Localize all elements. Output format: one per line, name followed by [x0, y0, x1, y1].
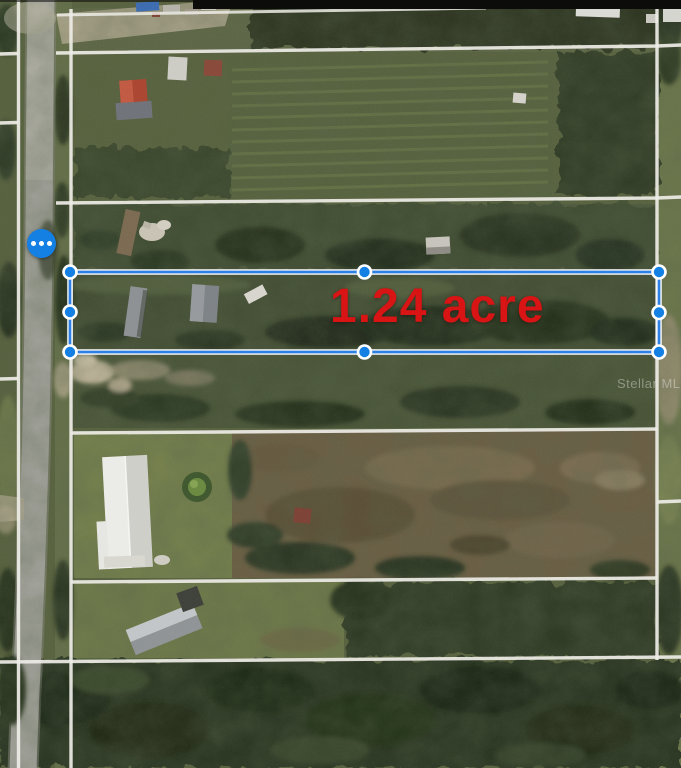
image-edge-band: [193, 0, 681, 9]
selection-handle-top-right[interactable]: [651, 264, 667, 280]
acreage-label: 1.24 acre: [330, 283, 545, 331]
aerial-map-view[interactable]: 1.24 acre Stellar MLS: [0, 0, 681, 768]
selection-handle-bottom-right[interactable]: [651, 344, 667, 360]
selection-handle-left-middle[interactable]: [62, 304, 78, 320]
satellite-imagery[interactable]: [0, 0, 681, 768]
selection-handle-bottom-left[interactable]: [62, 344, 78, 360]
mls-watermark: Stellar MLS: [617, 376, 681, 391]
map-options-button[interactable]: [27, 229, 56, 258]
image-edge-band-left: [0, 0, 193, 2]
selection-handle-right-middle[interactable]: [651, 305, 667, 321]
selection-handle-top-left[interactable]: [62, 264, 78, 280]
selection-handle-top-middle[interactable]: [357, 264, 373, 280]
ellipsis-icon: [31, 241, 52, 246]
selection-handle-bottom-middle[interactable]: [357, 344, 373, 360]
grain-overlay: [0, 0, 681, 768]
